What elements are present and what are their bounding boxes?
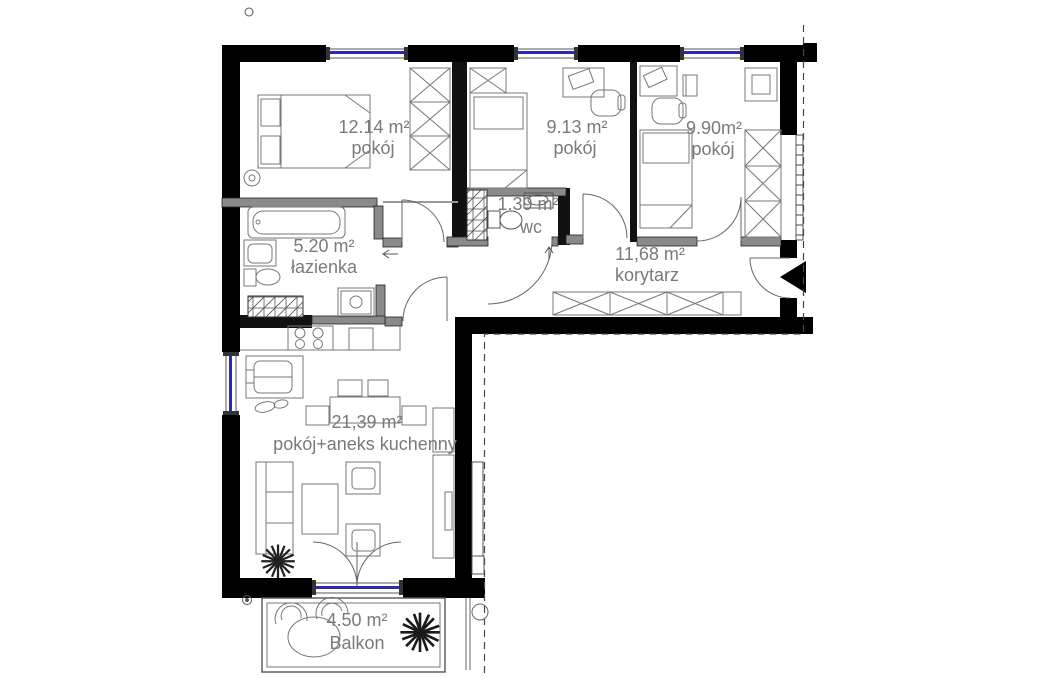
neighbor-window-strip [472,462,484,574]
balcony-name-label: Balkon [329,633,384,653]
corridor-wardrobe [553,292,741,315]
washbasin [244,240,276,266]
desk-room3 [640,66,697,96]
door-arc-wc [488,240,552,304]
living-name-label: pokój+aneks kuchenny [273,434,457,454]
door-arc-room3 [697,197,741,241]
room2-name-label: pokój [553,138,596,158]
door-arc-room2 [583,194,627,238]
window-room3 [680,45,744,62]
installation-shaft [467,190,487,240]
window-room1 [326,45,408,62]
wall-lamp-icon [244,170,260,186]
room2-area-label: 9.13 m² [546,117,607,137]
furniture-corridor [553,292,741,315]
tv-cabinet [433,408,454,558]
plant-icon-balcony: ✳ ✳ [386,595,454,671]
bathroom-toilet [244,269,280,286]
washing-machine [338,288,374,317]
wc-name-label: wc [520,217,542,237]
desk-room2 [563,68,604,97]
wardrobe-room1 [410,68,450,170]
kitchen-counter [240,326,400,350]
armchair-1 [346,462,380,494]
room3-area-label: 9.90m² [686,118,742,138]
window-kitchen [222,352,240,415]
room1-area-label: 12.14 m² [338,117,409,137]
chair-room2 [591,90,625,116]
room1-name-label: pokój [351,138,394,158]
corridor-area-label: 11,68 m² [615,244,685,264]
bathtub [248,207,345,238]
nightstand-room3 [745,68,777,101]
single-bed-room3 [640,130,692,228]
bathroom-area-label: 5.20 m² [293,236,354,256]
coffee-table [302,484,338,534]
door-swings [313,194,790,586]
wall-hatch-ticks [796,135,803,240]
single-bed-room2 [470,93,527,188]
living-area-label: 21,39 m² [331,412,402,432]
room3-name-label: pokój [691,139,734,159]
bathroom-door-arrow [383,250,398,258]
door-arc-living [403,277,447,321]
door-arc-room1 [402,200,444,242]
property-dashed-line [485,25,804,676]
armchair-2 [346,524,380,556]
balcony-area-label: 4.50 m² [326,610,387,630]
floor-plan-drawing: ✳ ✳ ✳ ✳ [0,0,1050,700]
wardrobe-room2 [470,68,506,93]
balcony-chair-1 [275,603,307,624]
wc-area-label: 1.39 m² [497,194,558,214]
wardrobe-room3 [745,130,781,237]
bathroom-name-label: łazienka [291,257,357,277]
chair-room3 [652,98,686,124]
kitchen-sink [246,356,303,414]
entrance-arrow-icon [780,261,806,293]
bathroom-shelf [248,296,303,317]
corridor-name-label: korytarz [615,265,679,285]
floor-plan: ✳ ✳ ✳ ✳ 12.14 m² pokój 9.13 m² pokój 9.9… [0,0,1050,700]
window-room2 [514,45,578,62]
